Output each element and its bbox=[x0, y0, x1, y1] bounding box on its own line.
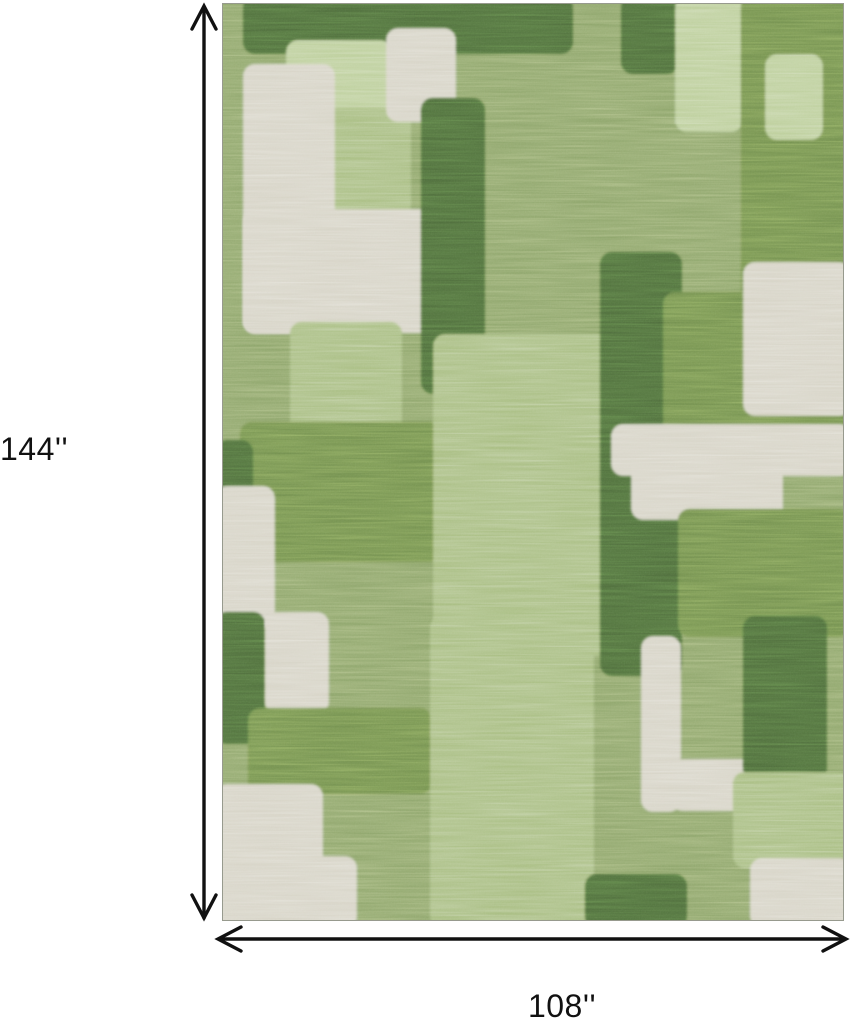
rug-block bbox=[750, 858, 843, 920]
width-dimension-arrow-icon bbox=[212, 922, 850, 956]
height-dimension-label: 144'' bbox=[0, 431, 72, 468]
rug-block bbox=[223, 486, 275, 628]
rug-block bbox=[265, 612, 329, 714]
rug-block bbox=[430, 616, 594, 920]
rug-block bbox=[733, 772, 843, 868]
height-dimension-arrow-icon bbox=[188, 0, 220, 930]
rug-block bbox=[765, 54, 823, 140]
rug-block bbox=[743, 262, 843, 416]
product-dimension-diagram: 144'' bbox=[0, 0, 850, 1026]
rug-image bbox=[223, 4, 843, 920]
rug-block bbox=[743, 616, 827, 780]
rug-block bbox=[248, 708, 432, 794]
rug-block bbox=[323, 108, 411, 218]
rug-block bbox=[243, 209, 441, 333]
rug-block bbox=[621, 4, 679, 74]
rug-block bbox=[433, 334, 611, 656]
rug-block bbox=[675, 4, 743, 132]
rug-block bbox=[223, 856, 357, 920]
width-dimension-label: 108'' bbox=[500, 988, 624, 1025]
rug-block bbox=[585, 874, 687, 920]
rug-block bbox=[741, 4, 843, 304]
